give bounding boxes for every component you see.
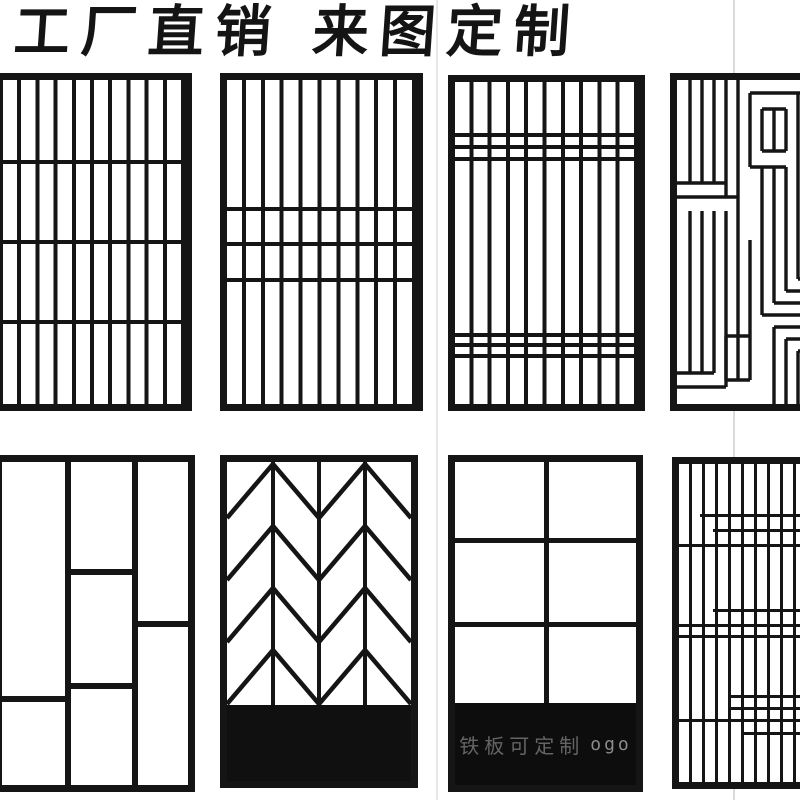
grid-line	[455, 622, 636, 627]
black-base: 铁板可定制 ogo	[455, 703, 636, 785]
panel-slats-double-band	[448, 75, 645, 411]
grid-line	[65, 462, 71, 785]
grid-line	[65, 569, 132, 575]
panel-offset-rectangles	[0, 455, 195, 792]
panel-greek-key-maze	[670, 73, 800, 411]
grid-line	[713, 529, 800, 532]
grid-line	[455, 343, 638, 347]
grid-line	[700, 514, 800, 517]
grid-line	[3, 240, 185, 244]
grid-line	[679, 544, 800, 547]
panel-dense-lattice	[672, 457, 800, 789]
grid-line	[455, 157, 638, 161]
grid-line	[728, 695, 800, 698]
grid-line	[3, 160, 185, 164]
chevron-lines	[227, 462, 411, 781]
grid-line	[227, 278, 416, 282]
grid-line	[455, 133, 638, 137]
grid-line	[742, 732, 800, 735]
watermark-text: 铁板可定制	[459, 730, 584, 759]
grid-line	[679, 624, 800, 627]
panel-slats-center-band	[220, 73, 423, 411]
grid-line	[679, 635, 800, 638]
grid-line	[227, 207, 416, 211]
grid-line	[455, 333, 638, 337]
black-base	[227, 705, 411, 781]
grid-line	[65, 683, 132, 689]
grid-line	[679, 719, 800, 722]
maze-lines	[677, 80, 800, 404]
grid-line	[2, 696, 71, 702]
grid-line	[132, 621, 188, 627]
watermark-logo-text: ogo	[590, 734, 632, 755]
grid-line	[455, 538, 636, 543]
grid-line	[227, 242, 416, 246]
panel-six-pane: 铁板可定制 ogo	[448, 455, 643, 792]
grid-line	[455, 354, 638, 358]
panel-slat-grid-4rows	[0, 73, 192, 411]
grid-line	[728, 707, 800, 710]
grid-line	[713, 609, 800, 612]
banner-title: 工厂直销 来图定制	[12, 0, 583, 64]
product-poster: 工厂直销 来图定制	[0, 0, 800, 800]
panel-herringbone-chevron	[220, 455, 418, 788]
grid-line	[455, 145, 638, 149]
faint-guide-line	[436, 0, 438, 800]
grid-line	[3, 320, 185, 324]
